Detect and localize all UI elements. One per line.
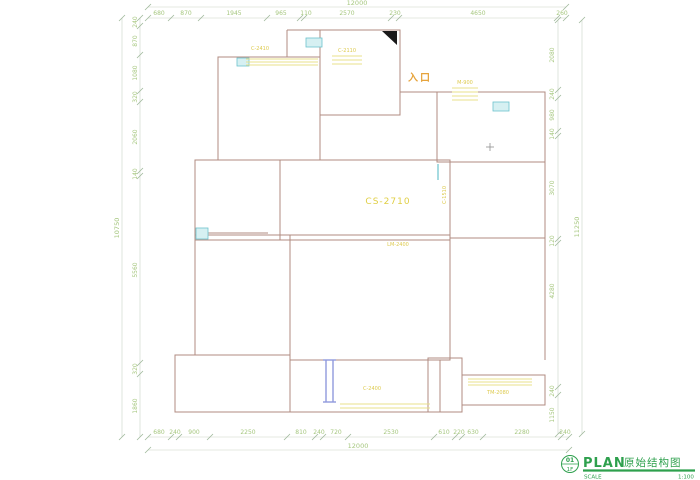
drawing-number: 01 (566, 457, 574, 464)
walls (175, 30, 545, 412)
dim-bottom: 630 (467, 429, 479, 436)
titleblock-title-en: PLAN (583, 456, 626, 471)
top-left-window-label: C-2410 (251, 46, 269, 52)
beam-label: LM-2400 (387, 242, 409, 248)
dim-bottom: 900 (188, 429, 200, 436)
entry-door-label: M-900 (457, 80, 473, 86)
dim-top: 870 (180, 10, 192, 17)
dim-right-total: 11250 (573, 217, 581, 238)
dimension-text-top: 680 870 1945 965 110 2570 230 4650 260 1… (153, 0, 568, 17)
dim-bottom: 2250 (240, 429, 255, 436)
dim-top-total: 12000 (347, 0, 368, 7)
dim-right: 240 (549, 88, 556, 100)
dimension-text-bottom: 680 240 900 2250 810 240 720 2530 610 22… (153, 429, 571, 450)
dim-bottom: 610 (438, 429, 450, 436)
balcony-window-label: TM-2080 (486, 390, 509, 396)
titleblock-scale-value: 1:100 (678, 475, 694, 480)
dim-left: 870 (132, 35, 139, 47)
dim-right: 980 (549, 109, 556, 121)
window-cyan (196, 228, 208, 239)
dim-left: 240 (132, 16, 139, 28)
dim-top: 1945 (226, 10, 241, 17)
dim-left: 1860 (132, 398, 139, 413)
dim-right: 1150 (549, 407, 556, 422)
floor-plan-canvas: 680 870 1945 965 110 2570 230 4650 260 1… (0, 0, 700, 480)
markers (382, 31, 494, 151)
dim-bottom-total: 12000 (348, 442, 369, 450)
dim-bottom: 810 (295, 429, 307, 436)
titleblock-title-cn: 原始结构图 (624, 456, 682, 469)
center-window-label: CS-2710 (365, 197, 410, 207)
dim-top: 110 (300, 10, 312, 17)
dim-left: 1080 (132, 65, 139, 80)
drawing-floor: 1F (567, 467, 574, 473)
dim-bottom: 240 (169, 429, 181, 436)
dim-bottom: 240 (313, 429, 325, 436)
dim-left: 320 (132, 91, 139, 103)
dim-bottom: 2280 (514, 429, 529, 436)
windows (196, 38, 509, 402)
dim-right: 3070 (549, 180, 556, 195)
dim-right: 2080 (549, 47, 556, 62)
dim-bottom: 720 (330, 429, 342, 436)
dim-bottom: 2530 (383, 429, 398, 436)
dim-right: 120 (549, 235, 556, 247)
dim-left: 2060 (132, 129, 139, 144)
dimension-text-right: 2080 240 980 140 3070 120 4280 240 1150 … (549, 47, 581, 422)
top-mid-window-label: C-2110 (338, 48, 356, 54)
dim-left-total: 10750 (113, 218, 121, 239)
dim-right: 140 (549, 128, 556, 140)
window-cyan (493, 102, 509, 111)
bottom-window-label: C-2400 (363, 386, 381, 392)
dim-bottom: 680 (153, 429, 165, 436)
dim-left: 140 (132, 168, 139, 180)
dim-right: 240 (549, 385, 556, 397)
dim-left: 5560 (132, 262, 139, 277)
dimension-lines (119, 4, 585, 453)
window-blue (323, 360, 336, 402)
dim-top: 230 (389, 10, 401, 17)
dim-bottom: 220 (453, 429, 465, 436)
dim-top: 4650 (470, 10, 485, 17)
dim-top: 965 (275, 10, 287, 17)
dim-top: 260 (556, 10, 568, 17)
right-window-label: C-1510 (442, 186, 448, 204)
dim-bottom: 240 (559, 429, 571, 436)
dim-top: 680 (153, 10, 165, 17)
dim-top: 2570 (339, 10, 354, 17)
dimension-ticks-left (119, 15, 143, 440)
dim-left: 320 (132, 363, 139, 375)
north-triangle-marker (382, 31, 397, 45)
entrance-label: 入口 (408, 72, 432, 84)
title-block: 01 1F PLAN 原始结构图 SCALE 1:100 (562, 456, 696, 480)
titleblock-scale-label: SCALE (584, 475, 602, 480)
window-cyan (306, 38, 322, 47)
dimension-text-left: 240 870 1080 320 2060 140 5560 320 1860 … (113, 16, 139, 414)
dim-right: 4280 (549, 283, 556, 298)
center-point-marker (486, 143, 494, 151)
